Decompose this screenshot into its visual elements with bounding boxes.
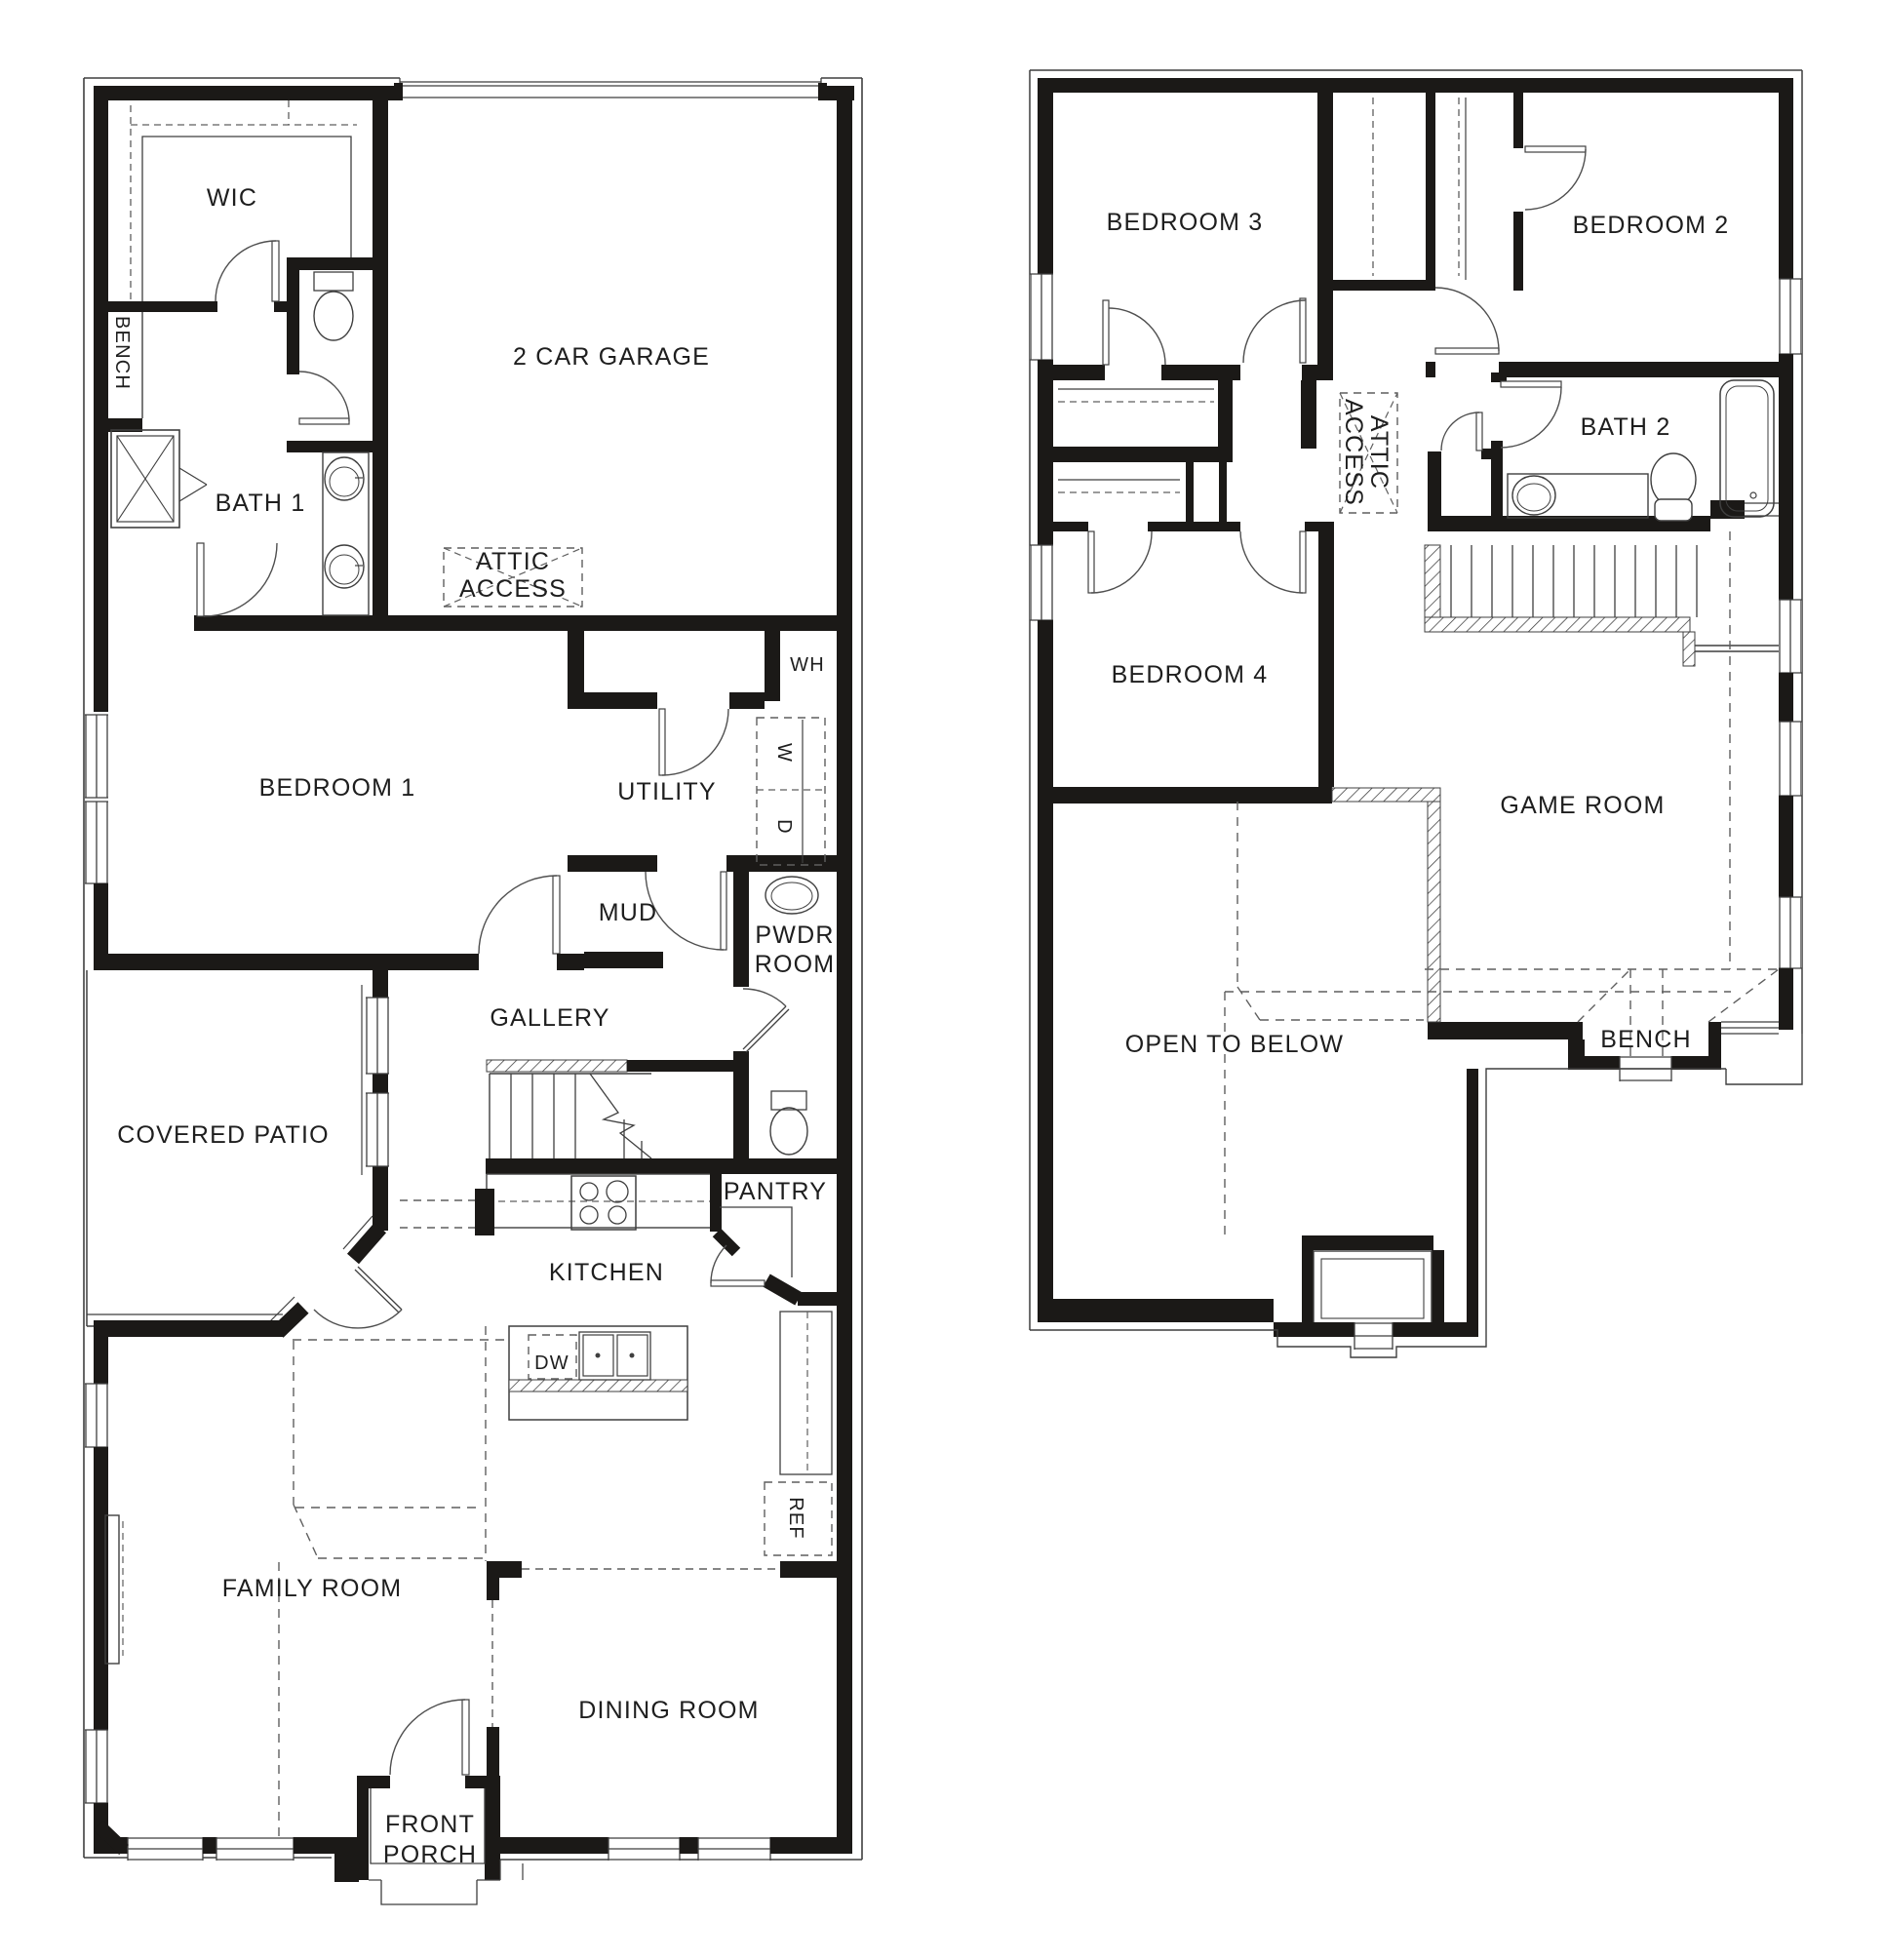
svg-text:REF: REF [785,1497,806,1540]
svg-text:D: D [773,819,795,835]
svg-text:W: W [773,743,795,763]
svg-text:DW: DW [534,1352,569,1374]
svg-text:BENCH: BENCH [1600,1026,1692,1053]
svg-text:ATTIC: ATTIC [476,548,550,575]
svg-text:MUD: MUD [599,899,658,926]
svg-text:BATH 2: BATH 2 [1581,413,1671,441]
svg-text:BENCH: BENCH [111,316,133,390]
svg-text:ACCESS: ACCESS [459,575,567,603]
svg-text:BEDROOM 4: BEDROOM 4 [1112,661,1269,688]
svg-text:WIC: WIC [207,184,257,212]
svg-text:WH: WH [790,654,825,676]
svg-text:COVERED PATIO: COVERED PATIO [117,1121,329,1149]
svg-text:UTILITY: UTILITY [617,778,716,805]
svg-text:OPEN TO BELOW: OPEN TO BELOW [1125,1031,1344,1058]
svg-text:PORCH: PORCH [383,1841,477,1868]
svg-text:KITCHEN: KITCHEN [549,1259,664,1286]
svg-text:FRONT: FRONT [385,1811,475,1838]
svg-text:BATH 1: BATH 1 [216,490,306,517]
svg-text:DINING ROOM: DINING ROOM [578,1697,759,1724]
svg-text:BEDROOM 3: BEDROOM 3 [1107,209,1264,236]
svg-text:GAME ROOM: GAME ROOM [1500,792,1665,819]
svg-text:ATTIC: ATTIC [1365,415,1393,490]
svg-text:2 CAR GARAGE: 2 CAR GARAGE [513,343,710,371]
svg-text:BEDROOM 1: BEDROOM 1 [259,774,416,802]
svg-text:GALLERY: GALLERY [490,1004,609,1032]
svg-text:PANTRY: PANTRY [724,1178,827,1205]
svg-text:ROOM: ROOM [755,951,836,978]
svg-text:ACCESS: ACCESS [1340,399,1367,506]
svg-text:BEDROOM 2: BEDROOM 2 [1573,212,1730,239]
svg-text:FAMILY ROOM: FAMILY ROOM [222,1575,403,1602]
svg-text:PWDR: PWDR [755,921,834,949]
